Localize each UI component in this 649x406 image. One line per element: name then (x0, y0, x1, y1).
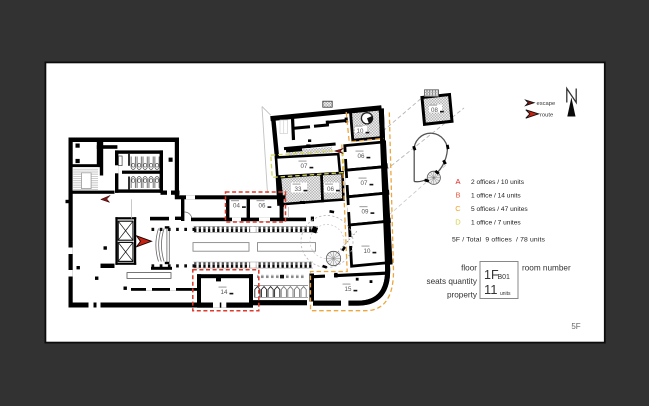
svg-text:15: 15 (345, 286, 352, 293)
svg-text:5F / Total 9 offices / 78 un: 5F / Total 9 offices / 78 units (452, 237, 546, 244)
svg-text:C: C (455, 204, 461, 213)
svg-text:escape: escape (537, 101, 556, 107)
svg-text:09: 09 (362, 209, 369, 216)
svg-text:06: 06 (259, 203, 266, 210)
svg-text:D: D (455, 218, 461, 227)
svg-text:A: A (455, 177, 460, 186)
svg-text:14: 14 (221, 289, 228, 296)
svg-text:08: 08 (431, 107, 438, 114)
svg-text:5F: 5F (571, 322, 580, 331)
svg-text:33: 33 (295, 186, 302, 193)
svg-text:10: 10 (357, 128, 364, 135)
svg-text:07: 07 (361, 180, 368, 187)
svg-text:room number: room number (522, 264, 571, 273)
svg-text:B01: B01 (498, 274, 511, 281)
svg-text:units: units (500, 291, 511, 297)
svg-text:1 office / 14 units: 1 office / 14 units (471, 193, 521, 200)
svg-text:floor: floor (461, 264, 477, 273)
svg-text:B: B (455, 191, 460, 200)
svg-text:seats quantity: seats quantity (426, 277, 477, 286)
svg-text:1 office / 7 unites: 1 office / 7 unites (471, 220, 521, 227)
svg-text:06: 06 (327, 186, 334, 193)
svg-text:07: 07 (301, 163, 308, 170)
svg-text:04: 04 (233, 203, 240, 210)
svg-text:10: 10 (364, 248, 371, 255)
svg-text:2 offices / 10 units: 2 offices / 10 units (471, 179, 525, 186)
svg-text:11: 11 (484, 282, 498, 297)
svg-text:06: 06 (358, 153, 365, 160)
svg-text:5 offices / 47 unites: 5 offices / 47 unites (471, 206, 528, 213)
svg-text:property: property (447, 291, 478, 300)
svg-text:route: route (540, 112, 553, 118)
